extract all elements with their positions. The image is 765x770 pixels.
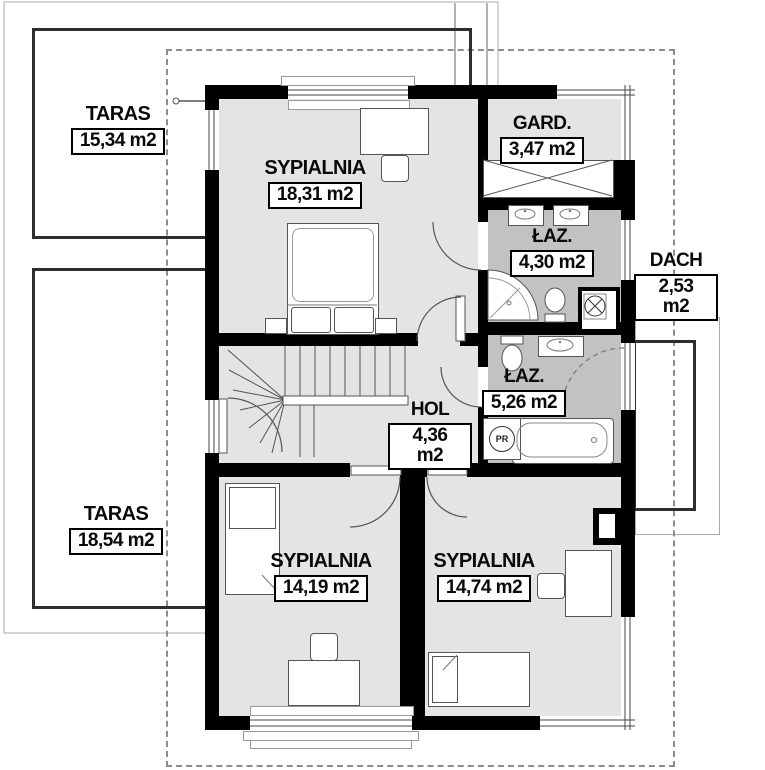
room-label-garderoba: GARD. 3,47 m2 — [496, 114, 588, 164]
balcony-door-swing-dashed — [562, 348, 624, 410]
room-name: SYPIALNIA — [404, 551, 564, 572]
door-arcs — [228, 222, 481, 527]
room-label-taras-top: TARAS 15,34 m2 — [38, 104, 198, 155]
room-label-taras-left: TARAS 18,54 m2 — [36, 504, 196, 555]
room-area: 3,47 m2 — [500, 137, 584, 164]
room-area: 4,30 m2 — [510, 250, 594, 277]
room-area: 14,19 m2 — [274, 575, 368, 602]
vent-shaft-symbol — [584, 294, 606, 319]
room-name: TARAS — [36, 504, 196, 525]
room-area: 18,54 m2 — [69, 528, 163, 555]
room-area: 5,26 m2 — [482, 390, 566, 417]
room-label-sypialnia-right: SYPIALNIA 14,74 m2 — [404, 551, 564, 602]
bathtub-inner — [517, 423, 607, 457]
room-name: ŁAZ. — [506, 227, 598, 247]
room-name: HOL — [388, 400, 472, 420]
room-area: 18,31 m2 — [268, 182, 362, 209]
room-name: SYPIALNIA — [240, 158, 390, 179]
room-name: ŁAZ. — [478, 367, 570, 387]
room-area: 15,34 m2 — [71, 128, 165, 155]
room-label-lazienka-upper: ŁAZ. 4,30 m2 — [506, 227, 598, 277]
shower — [488, 270, 538, 320]
room-name: DACH — [634, 251, 718, 271]
room-name: GARD. — [496, 114, 588, 134]
room-label-sypialnia-master: SYPIALNIA 18,31 m2 — [240, 158, 390, 209]
bed-fold — [443, 655, 457, 670]
room-label-dach: DACH 2,53 m2 — [634, 251, 718, 321]
room-area: 4,36 m2 — [388, 423, 472, 470]
room-name: TARAS — [38, 104, 198, 125]
room-area: 14,74 m2 — [437, 575, 531, 602]
floor-plan: PR — [0, 0, 765, 770]
room-label-hol: HOL 4,36 m2 — [388, 400, 472, 470]
wardrobe-cross — [483, 160, 612, 196]
room-name: SYPIALNIA — [242, 551, 400, 572]
room-area: 2,53 m2 — [634, 274, 718, 321]
room-label-lazienka-lower: ŁAZ. 5,26 m2 — [478, 367, 570, 417]
room-label-sypialnia-left: SYPIALNIA 14,19 m2 — [242, 551, 400, 602]
bathtub-drain — [592, 438, 597, 443]
toilet-upper — [545, 288, 565, 322]
